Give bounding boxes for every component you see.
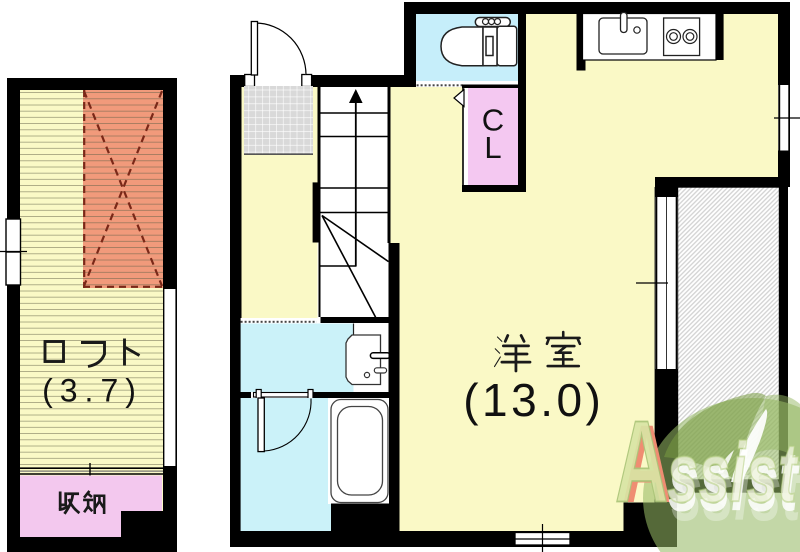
- svg-text:L: L: [484, 130, 501, 165]
- svg-text:(3.7): (3.7): [42, 373, 143, 409]
- svg-text:(13.0): (13.0): [463, 374, 604, 426]
- svg-text:A: A: [615, 396, 668, 526]
- svg-text:ssist: ssist: [667, 426, 799, 520]
